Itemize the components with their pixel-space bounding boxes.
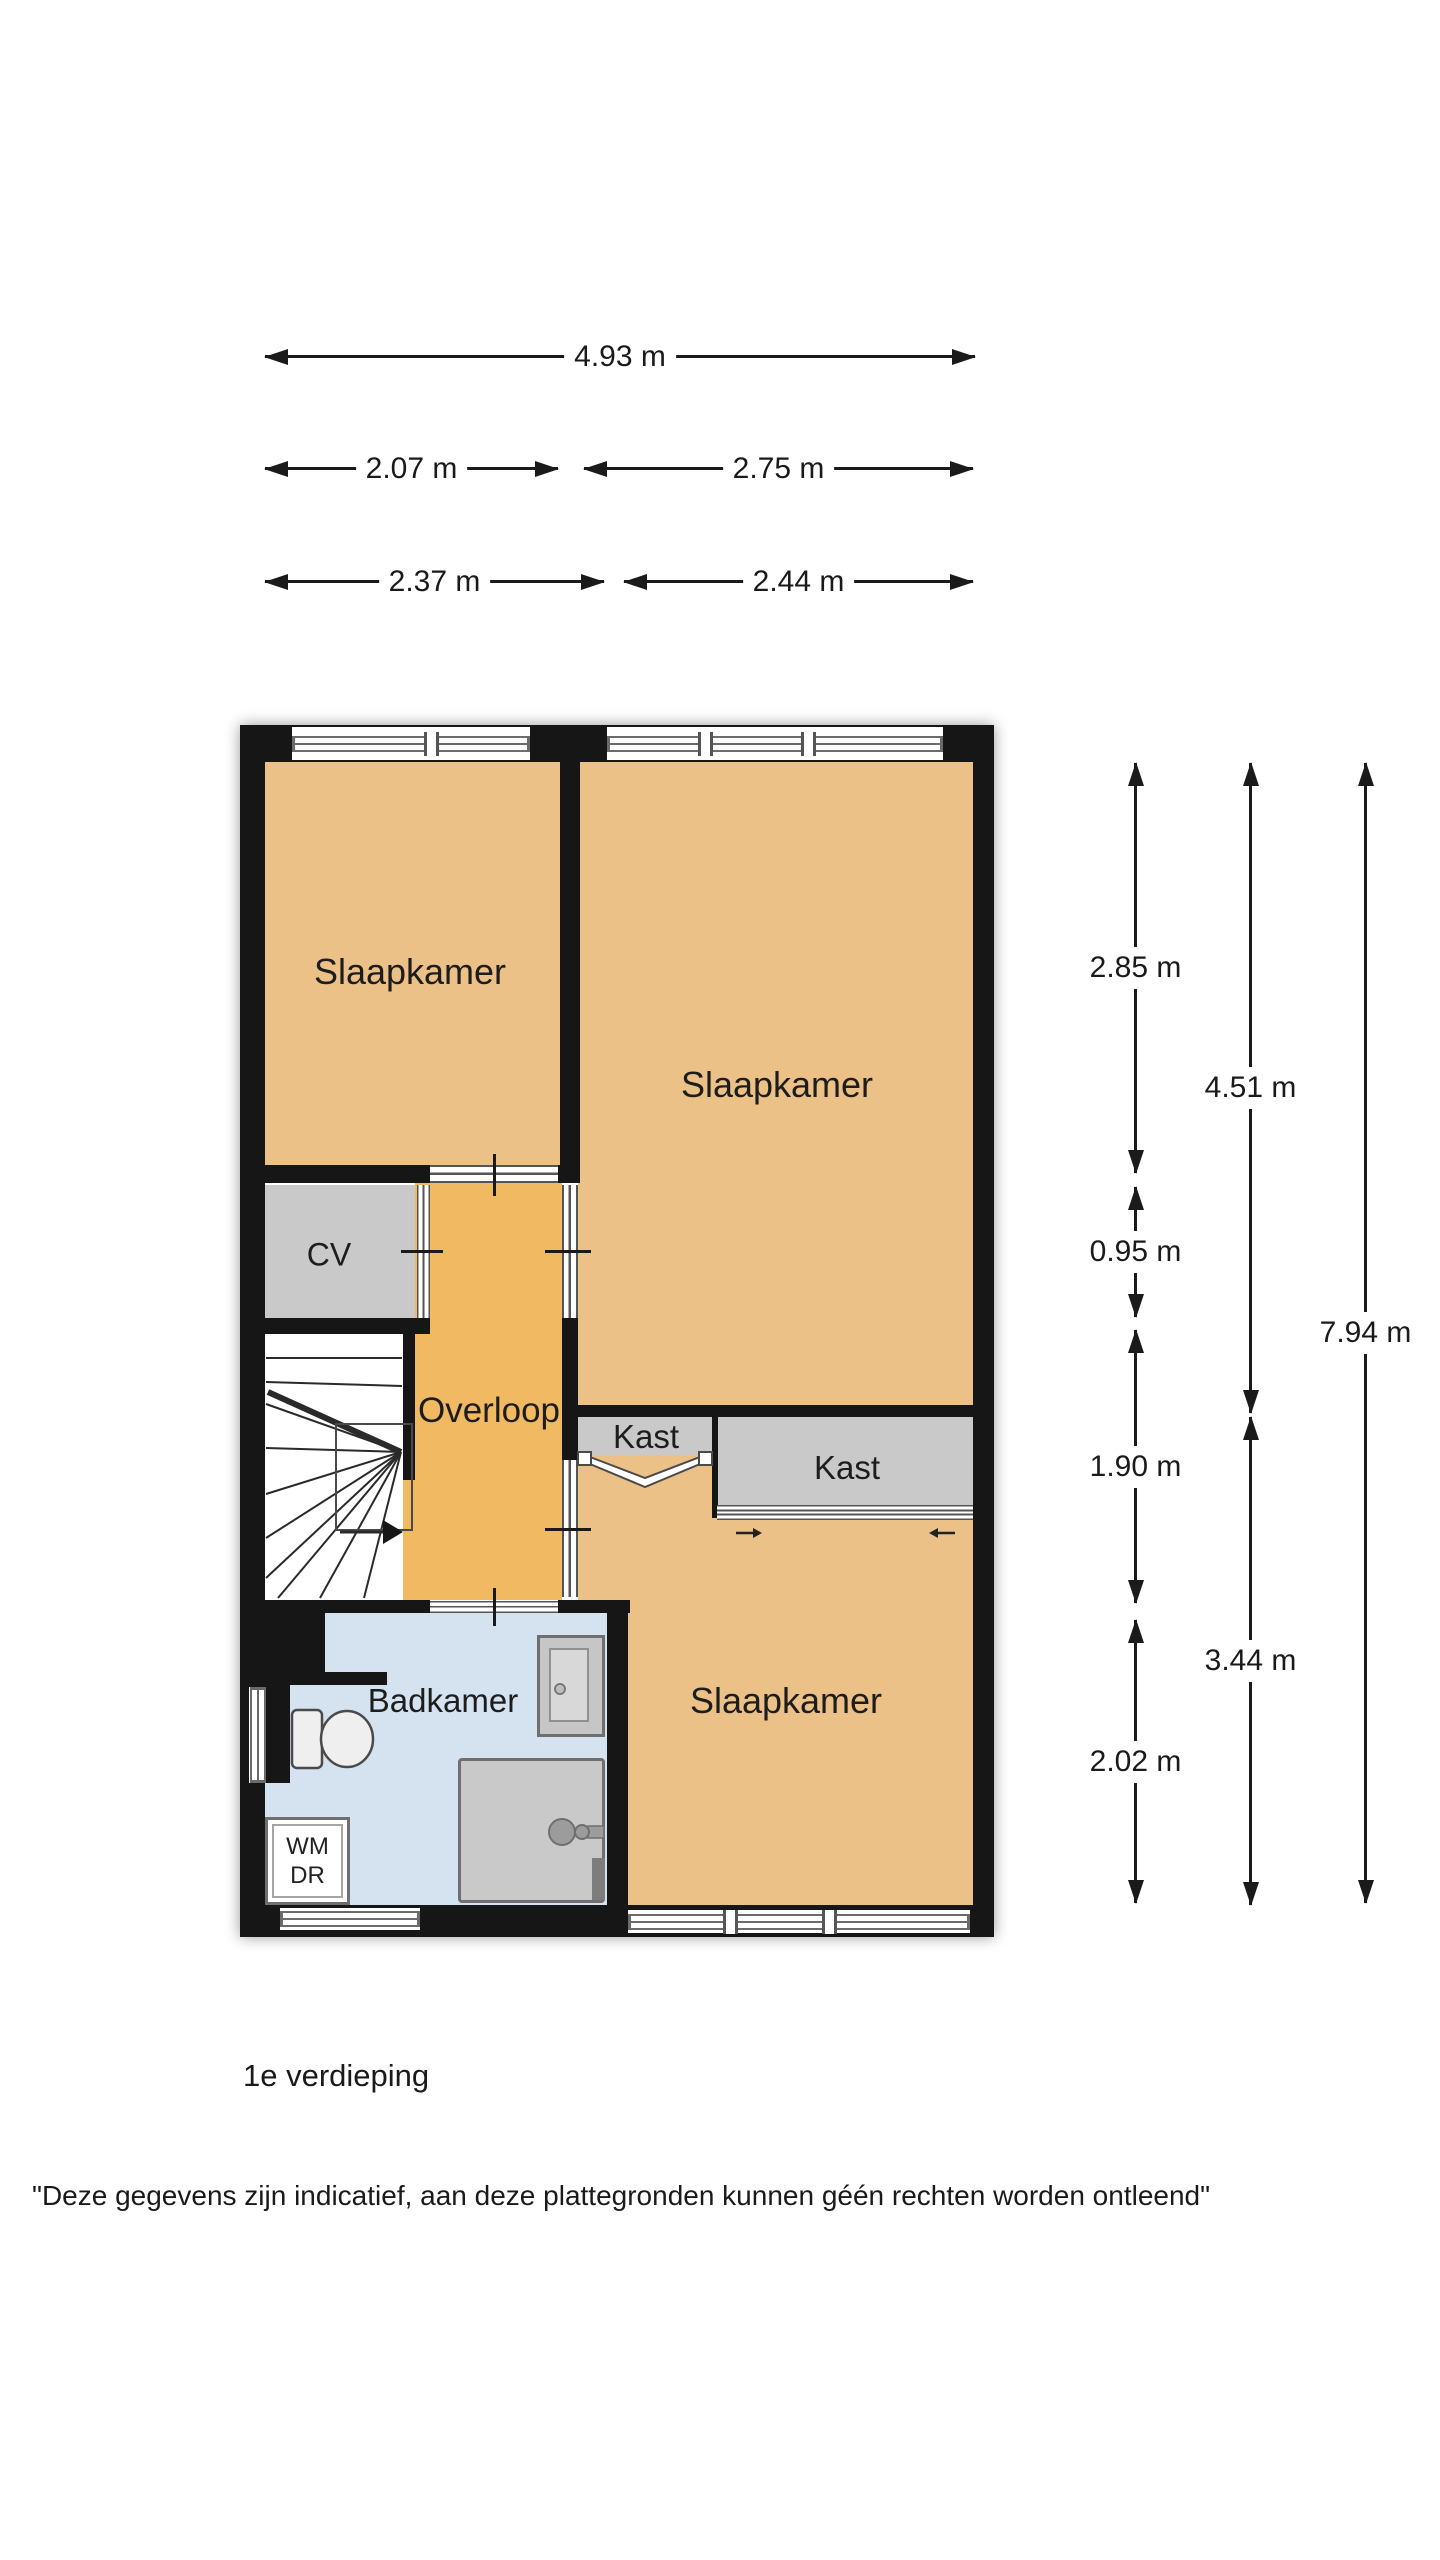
room-label-kast-large: Kast xyxy=(814,1449,880,1487)
arrow-up-icon xyxy=(1243,762,1259,786)
dim-height-7-94: 7.94 m xyxy=(1364,763,1367,1903)
room-label-overloop: Overloop xyxy=(418,1391,560,1431)
dim-label: 2.75 m xyxy=(723,448,835,490)
washer-dryer-box: WM DR xyxy=(265,1817,350,1905)
door-tick-icon xyxy=(545,1528,591,1531)
dim-label: 7.94 m xyxy=(1310,1312,1422,1354)
window-mullion-icon xyxy=(698,732,713,756)
wall-right xyxy=(973,725,994,1937)
door-tick-icon xyxy=(401,1250,443,1253)
floor-title: 1e verdieping xyxy=(243,2058,429,2094)
arrow-up-icon xyxy=(1243,1416,1259,1440)
dim-label: 0.95 m xyxy=(1080,1231,1192,1273)
room-label-slaapkamer-bottom: Slaapkamer xyxy=(690,1680,882,1722)
dim-label: 4.51 m xyxy=(1195,1067,1307,1109)
wall-stairs-bottom xyxy=(240,1600,430,1613)
dim-height-2-02: 2.02 m xyxy=(1134,1620,1137,1903)
wall-badkamer-right xyxy=(607,1602,628,1905)
room-stairwell xyxy=(265,1334,403,1600)
arrow-right-icon xyxy=(950,574,974,590)
window-bottom-badkamer xyxy=(280,1908,420,1930)
dim-label: 2.02 m xyxy=(1080,1741,1192,1783)
sink-icon xyxy=(537,1635,605,1737)
window-glass-icon xyxy=(628,1914,970,1930)
room-overloop xyxy=(403,1480,415,1600)
arrow-up-icon xyxy=(1128,1619,1144,1643)
wall-toilet-side xyxy=(265,1685,290,1783)
dim-height-2-85: 2.85 m xyxy=(1134,763,1137,1173)
wall-kast-divider xyxy=(712,1405,718,1518)
wall-badkamer-corner xyxy=(240,1613,325,1672)
window-left-toilet xyxy=(249,1687,266,1783)
window-mullion-icon xyxy=(801,732,816,756)
arrow-down-icon xyxy=(1128,1880,1144,1904)
dim-label: 2.44 m xyxy=(743,561,855,603)
arrow-right-icon xyxy=(581,574,605,590)
door-kast-large-slider xyxy=(717,1505,973,1520)
floorplan-page: 4.93 m 2.07 m 2.75 m 2.37 m 2.44 m xyxy=(0,0,1440,2560)
shower-icon xyxy=(458,1758,605,1903)
arrow-right-icon xyxy=(535,461,559,477)
sink-drain-icon xyxy=(554,1683,566,1695)
washer-dryer-inner: WM DR xyxy=(272,1824,343,1898)
arrow-left-icon xyxy=(264,461,288,477)
door-tick-icon xyxy=(493,1588,496,1626)
dim-width-row3-left: 2.37 m xyxy=(265,580,604,583)
window-mullion-icon xyxy=(424,732,439,756)
dr-label: DR xyxy=(290,1861,325,1890)
room-label-cv: CV xyxy=(307,1237,351,1274)
window-glass-icon xyxy=(280,1911,420,1927)
arrow-left-icon xyxy=(264,349,288,365)
dim-label: 2.85 m xyxy=(1080,947,1192,989)
arrow-up-icon xyxy=(1358,762,1374,786)
arrow-left-icon xyxy=(583,461,607,477)
arrow-up-icon xyxy=(1128,1329,1144,1353)
dim-width-row2-left: 2.07 m xyxy=(265,467,558,470)
dim-label: 3.44 m xyxy=(1195,1640,1307,1682)
arrow-down-icon xyxy=(1243,1882,1259,1906)
arrow-down-icon xyxy=(1128,1580,1144,1604)
arrow-down-icon xyxy=(1243,1390,1259,1414)
wall-stairs-right xyxy=(403,1334,415,1480)
dim-label: 2.07 m xyxy=(356,448,468,490)
dim-width-total: 4.93 m xyxy=(265,355,975,358)
dim-height-4-51: 4.51 m xyxy=(1249,763,1252,1413)
window-top-left xyxy=(292,727,530,760)
door-tick-icon xyxy=(545,1250,591,1253)
dim-height-1-90: 1.90 m xyxy=(1134,1330,1137,1603)
arrow-down-icon xyxy=(1128,1294,1144,1318)
wall-between-bedrooms xyxy=(560,762,580,1177)
room-label-kast-small: Kast xyxy=(613,1418,679,1456)
dim-label: 1.90 m xyxy=(1080,1446,1192,1488)
arrow-up-icon xyxy=(1128,1186,1144,1210)
window-mullion-icon xyxy=(723,1910,738,1934)
wall-bedroom-cv xyxy=(558,1165,580,1183)
room-label-slaapkamer-top-right: Slaapkamer xyxy=(681,1064,873,1106)
wm-label: WM xyxy=(286,1832,329,1861)
wall-cv-stairs xyxy=(240,1318,430,1334)
arrow-up-icon xyxy=(1128,762,1144,786)
window-mullion-icon xyxy=(822,1910,837,1934)
dim-width-row2-right: 2.75 m xyxy=(584,467,973,470)
room-label-slaapkamer-top-left: Slaapkamer xyxy=(314,951,506,993)
arrow-right-icon xyxy=(950,461,974,477)
wall-kast-top xyxy=(573,1405,973,1417)
disclaimer-text: "Deze gegevens zijn indicatief, aan deze… xyxy=(32,2180,1210,2212)
window-glass-icon xyxy=(607,736,943,752)
arrow-left-icon xyxy=(264,574,288,590)
dim-height-0-95: 0.95 m xyxy=(1134,1187,1137,1317)
dim-width-row3-right: 2.44 m xyxy=(624,580,973,583)
window-glass-icon xyxy=(250,1687,266,1783)
door-tick-icon xyxy=(493,1154,496,1196)
arrow-down-icon xyxy=(1358,1880,1374,1904)
wall-bedroom-cv xyxy=(240,1165,430,1183)
arrow-right-icon xyxy=(952,349,976,365)
arrow-left-icon xyxy=(623,574,647,590)
room-label-badkamer: Badkamer xyxy=(368,1682,518,1720)
window-top-right xyxy=(607,727,943,760)
dim-label: 2.37 m xyxy=(379,561,491,603)
window-bottom-slaapkamer xyxy=(628,1910,970,1933)
wall-overloop-right xyxy=(562,1318,578,1460)
arrow-down-icon xyxy=(1128,1150,1144,1174)
window-glass-icon xyxy=(292,736,530,752)
dim-height-3-44: 3.44 m xyxy=(1249,1417,1252,1905)
dim-label: 4.93 m xyxy=(564,336,676,378)
